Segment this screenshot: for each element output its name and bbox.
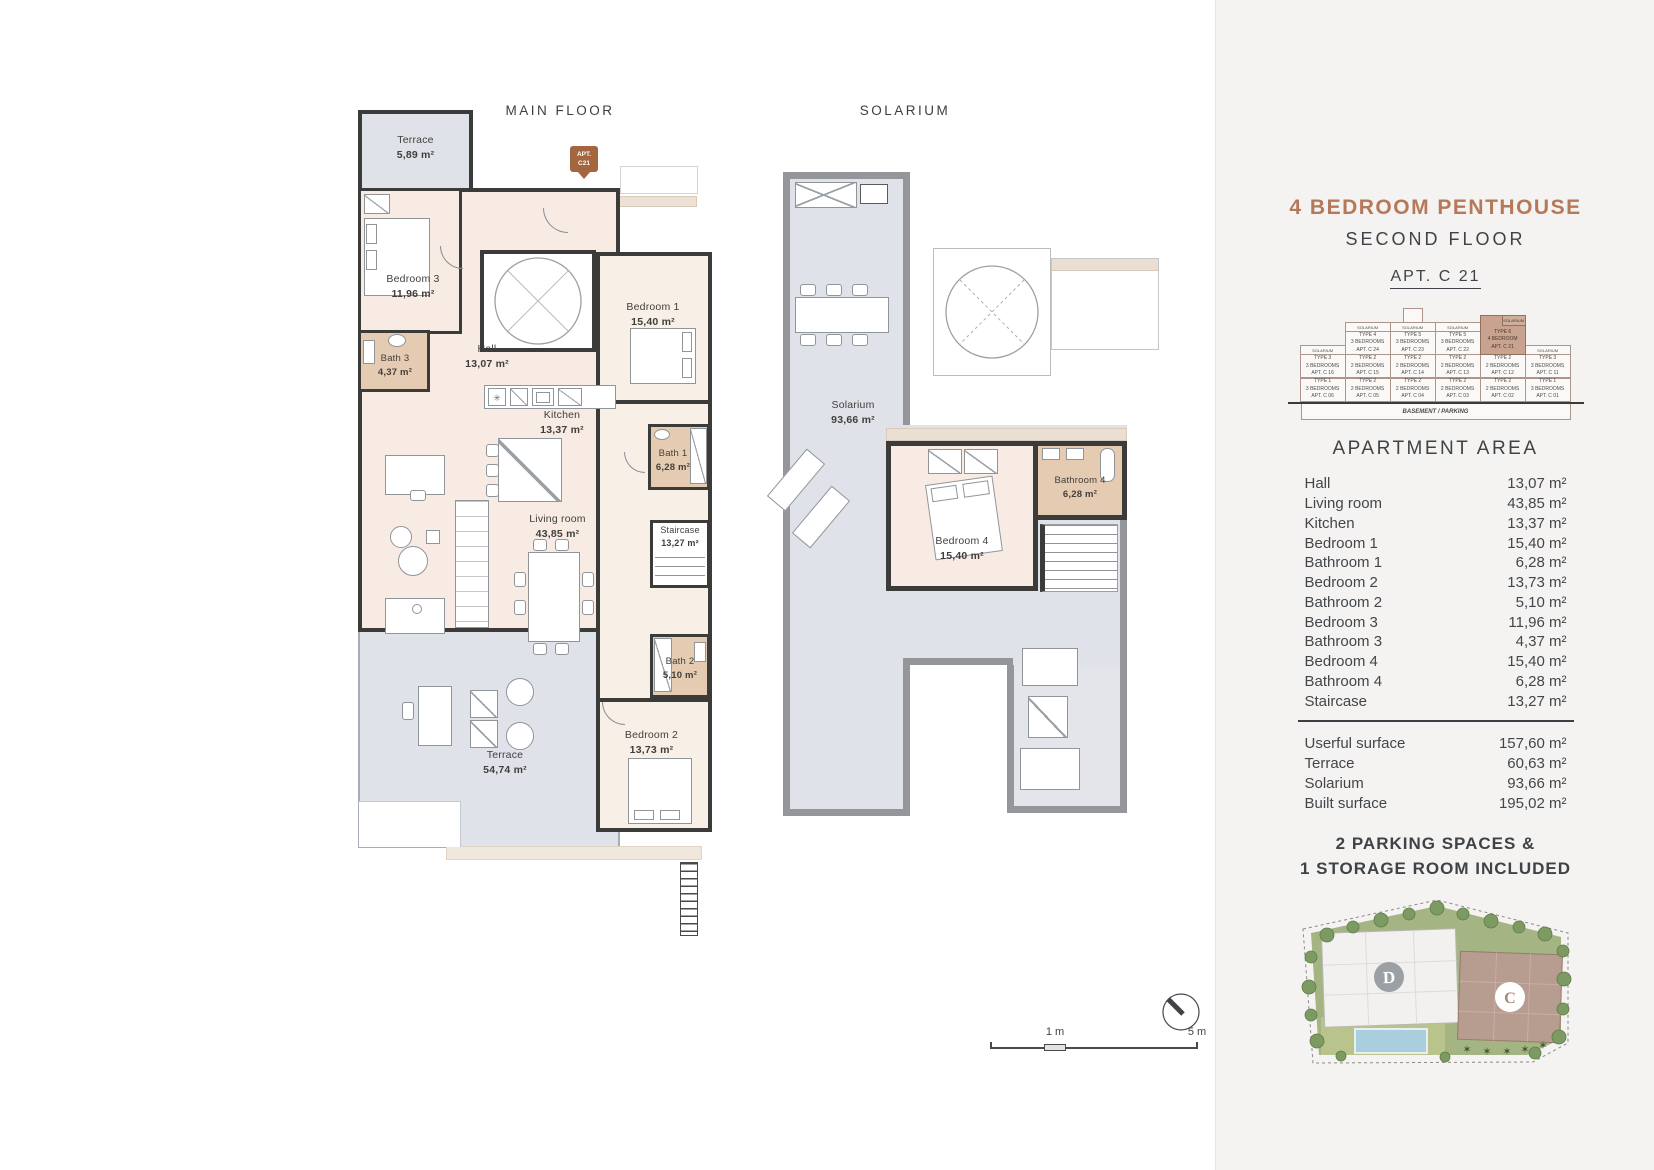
solarium-chair	[800, 284, 816, 296]
apartment-cell: TYPE 22 BEDROOMSAPT. C 15	[1345, 354, 1391, 378]
solarium-wall	[903, 662, 910, 816]
table-row: Bathroom 34,37 m²	[1305, 632, 1567, 652]
solarium-chair	[852, 284, 868, 296]
table-row: Bedroom 311,96 m²	[1305, 613, 1567, 633]
dining-table	[528, 552, 580, 642]
kitchen-island	[498, 438, 562, 502]
scale-label-5m: 5 m	[1182, 1026, 1212, 1038]
living-desk-chair	[410, 490, 426, 501]
table-row: Bathroom 46,28 m²	[1305, 672, 1567, 692]
solarium-staircase	[1040, 524, 1118, 592]
building-column-4: SOLARIUM TYPE 53 BEDROOMSAPT. C 22 TYPE …	[1436, 322, 1481, 402]
living-side-table	[398, 546, 428, 576]
lower-room-desk-2	[1020, 748, 1080, 790]
solarium-table	[795, 297, 889, 333]
roof-tower	[1403, 308, 1423, 322]
roof-outline-box	[620, 166, 698, 194]
living-desk	[385, 455, 445, 495]
bedroom3-label: Bedroom 3 11,96 m²	[368, 272, 458, 302]
totals-divider	[1298, 720, 1574, 723]
main-floor-title: MAIN FLOOR	[450, 103, 670, 118]
apartment-number: APT. C 21	[1216, 268, 1654, 286]
building-d: D	[1321, 929, 1458, 1028]
bath3-label: Bath 3 4,37 m²	[360, 352, 430, 380]
apartment-cell: TYPE 22 BEDROOMSAPT. C 05	[1345, 378, 1391, 402]
building-column-1: SOLARIUM TYPE 33 BEDROOMSAPT. C 16 TYPE …	[1301, 345, 1346, 401]
bathroom4-sink	[1042, 448, 1060, 460]
solarium-chair	[826, 284, 842, 296]
staircase-treads	[655, 557, 705, 583]
terrace-cutout	[359, 801, 461, 847]
lower-room-desk	[1022, 648, 1078, 686]
elevator-core	[480, 250, 596, 352]
scale-bar-tick	[990, 1042, 992, 1049]
site-map: D C ✶✶✶ ✶✶	[1297, 893, 1574, 1069]
apartment-area-heading: APARTMENT AREA	[1216, 438, 1654, 460]
bedroom4-label: Bedroom 4 15,40 m²	[912, 534, 1012, 564]
lower-room-box	[1028, 696, 1068, 738]
terrace-main-label: Terrace 54,74 m²	[455, 748, 555, 778]
bathroom4-sink	[1066, 448, 1084, 460]
apartment-cell: TYPE 33 BEDROOMSAPT. C 11	[1525, 354, 1571, 378]
basement-bar: BASEMENT / PARKING	[1301, 404, 1571, 420]
solarium-wall	[783, 172, 909, 179]
bedroom1-pillow	[682, 358, 692, 378]
terrace-round-chair	[506, 722, 534, 750]
apartment-cell: TYPE 22 BEDROOMSAPT. C 03	[1435, 378, 1481, 402]
kitchen-stove	[558, 388, 582, 406]
svg-text:✶: ✶	[1462, 1044, 1471, 1056]
bathroom4-label: Bathroom 4 6,28 m²	[1035, 474, 1125, 502]
bath1-label: Bath 1 6,28 m²	[644, 447, 702, 475]
roof-beige-band	[1052, 259, 1158, 271]
bedroom2-pillow	[634, 810, 654, 820]
totals-row: Terrace60,63 m²	[1305, 754, 1567, 774]
table-row: Bathroom 16,28 m²	[1305, 553, 1567, 573]
dining-chair	[514, 600, 526, 615]
ladder-strip	[680, 862, 698, 936]
bedroom3-closet	[364, 194, 390, 214]
apartment-cell: TYPE 53 BEDROOMSAPT. C 22	[1435, 331, 1481, 355]
solarium-wall	[783, 809, 910, 816]
totals-table: Userful surface157,60 m² Terrace60,63 m²…	[1305, 734, 1567, 814]
living-sofa	[455, 500, 489, 628]
bedroom2-pillow	[660, 810, 680, 820]
table-row: Hall13,07 m²	[1305, 474, 1567, 494]
apartment-cell: TYPE 33 BEDROOMSAPT. C 16	[1300, 354, 1346, 378]
bedroom3-pillow	[366, 224, 377, 244]
solarium-wall	[903, 172, 910, 425]
building-column-2: SOLARIUM TYPE 43 BEDROOMSAPT. C 24 TYPE …	[1346, 322, 1391, 402]
solarium-chair	[826, 334, 842, 346]
living-room-label: Living room 43,85 m²	[505, 512, 610, 542]
dining-chair	[582, 600, 594, 615]
scale-bar-tick	[1196, 1042, 1198, 1049]
info-sidebar: 4 BEDROOM PENTHOUSE SECOND FLOOR APT. C …	[1215, 0, 1654, 1170]
dining-chair	[555, 643, 569, 655]
building-column-6: SOLARIUM TYPE 33 BEDROOMSAPT. C 11 TYPE …	[1526, 345, 1571, 401]
site-pool	[1355, 1029, 1427, 1053]
apartment-cell: TYPE 22 BEDROOMSAPT. C 12	[1480, 354, 1526, 378]
table-row: Living room43,85 m²	[1305, 494, 1567, 514]
scale-label-1m: 1 m	[1040, 1026, 1070, 1038]
bedroom3-pillow	[366, 250, 377, 270]
lower-edge-strip	[446, 846, 702, 860]
area-table: Hall13,07 m² Living room43,85 m² Kitchen…	[1305, 474, 1567, 712]
bath3-toilet	[388, 334, 406, 347]
totals-row: Solarium93,66 m²	[1305, 774, 1567, 794]
svg-text:✶: ✶	[1482, 1046, 1491, 1058]
living-lamp	[412, 604, 422, 614]
highlighted-apartment-cell: SOLARIUM TYPE 64 BEDROOMAPT. C 21	[1480, 315, 1526, 355]
terrace-desk	[418, 686, 452, 746]
apartment-cell: TYPE 53 BEDROOMSAPT. C 23	[1390, 331, 1436, 355]
solarium-chair	[800, 334, 816, 346]
spiral-stair-icon	[934, 249, 1050, 375]
kitchen-cabinet	[510, 388, 528, 406]
solarium-chair	[852, 334, 868, 346]
bedroom4-pillow	[931, 485, 959, 502]
living-square-table	[426, 530, 440, 544]
terrace-box	[470, 690, 498, 718]
terrace-chair	[402, 702, 414, 720]
terrace-box	[470, 720, 498, 748]
bath2-label: Bath 2 5,10 m²	[650, 655, 710, 683]
bedroom1-pillow	[682, 332, 692, 352]
dining-chair	[582, 572, 594, 587]
bath1-toilet	[654, 429, 670, 440]
elevator-circle-icon	[484, 254, 592, 348]
bedroom4-beige-band	[886, 428, 1127, 441]
staircase-label: Staircase 13,27 m²	[644, 524, 716, 550]
building-c-letter: C	[1504, 990, 1516, 1007]
apt-marker: APT. C21	[570, 146, 598, 172]
solarium-ac-unit	[860, 184, 888, 204]
svg-text:✶: ✶	[1502, 1046, 1511, 1058]
apt-marker-line2: C21	[570, 160, 598, 169]
bedroom1-label: Bedroom 1 15,40 m²	[608, 300, 698, 330]
apartment-type-title: 4 BEDROOM PENTHOUSE	[1216, 196, 1654, 220]
table-row: Bedroom 415,40 m²	[1305, 652, 1567, 672]
bedroom4-wardrobe	[964, 449, 998, 474]
solarium-wall	[903, 658, 1013, 665]
spiral-stair-block	[933, 248, 1051, 376]
bedroom2-label: Bedroom 2 13,73 m²	[604, 728, 699, 758]
solarium-closet-hatch	[795, 182, 857, 208]
building-column-3: SOLARIUM TYPE 53 BEDROOMSAPT. C 23 TYPE …	[1391, 308, 1436, 402]
table-row: Bedroom 213,73 m²	[1305, 573, 1567, 593]
kitchen-stool	[486, 464, 499, 477]
dining-chair	[533, 643, 547, 655]
living-side-table-small	[390, 526, 412, 548]
kitchen-stool	[486, 444, 499, 457]
solarium-wall	[1007, 665, 1014, 813]
totals-row: Built surface195,02 m²	[1305, 794, 1567, 814]
table-row: Kitchen13,37 m²	[1305, 514, 1567, 534]
bedroom4-pillow	[962, 480, 990, 497]
kitchen-label: Kitchen 13,37 m²	[522, 408, 602, 438]
apartment-cell: TYPE 13 BEDROOMSAPT. C 01	[1525, 378, 1571, 402]
table-row: Staircase13,27 m²	[1305, 692, 1567, 712]
table-row: Bathroom 25,10 m²	[1305, 593, 1567, 613]
floor-subtitle: SECOND FLOOR	[1216, 229, 1654, 250]
apartment-cell: TYPE 13 BEDROOMSAPT. C 06	[1300, 378, 1346, 402]
apt-marker-line1: APT.	[570, 151, 598, 160]
roof-room-outline	[1051, 258, 1159, 350]
kitchen-freezer: ✳	[488, 388, 506, 406]
solarium-strip: SOLARIUM	[1502, 316, 1525, 326]
svg-text:✶: ✶	[1520, 1044, 1529, 1056]
solarium-title: SOLARIUM	[795, 103, 1015, 118]
hall-label: Hall 13,07 m²	[447, 342, 527, 372]
floorplan-brochure-page: { "page": { "main_title": "MAIN FLOOR", …	[0, 0, 1654, 1170]
parking-note: 2 PARKING SPACES & 1 STORAGE ROOM INCLUD…	[1216, 832, 1654, 881]
scale-bar-unit-box	[1044, 1044, 1066, 1051]
bedroom4-wardrobe	[928, 449, 962, 474]
kitchen-stool	[486, 484, 499, 497]
dining-chair	[514, 572, 526, 587]
terrace-top-label: Terrace 5,89 m²	[368, 133, 463, 163]
scale-bar-line	[990, 1047, 1197, 1049]
apartment-cell: TYPE 22 BEDROOMSAPT. C 04	[1390, 378, 1436, 402]
solarium-label: Solarium 93,66 m²	[803, 398, 903, 428]
building-column-5-highlighted: SOLARIUM TYPE 64 BEDROOMAPT. C 21 TYPE 2…	[1481, 315, 1526, 401]
apartment-cell: TYPE 22 BEDROOMSAPT. C 14	[1390, 354, 1436, 378]
building-d-letter: D	[1383, 968, 1396, 987]
terrace-round-chair	[506, 678, 534, 706]
table-row: Bedroom 115,40 m²	[1305, 534, 1567, 554]
kitchen-sink	[532, 388, 554, 406]
apartment-cell: TYPE 43 BEDROOMSAPT. C 24	[1345, 331, 1391, 355]
apartment-cell: TYPE 22 BEDROOMSAPT. C 02	[1480, 378, 1526, 402]
svg-text:✶: ✶	[1538, 1040, 1547, 1052]
building-c: C	[1457, 952, 1562, 1044]
building-stack-diagram: SOLARIUM TYPE 33 BEDROOMSAPT. C 16 TYPE …	[1301, 308, 1571, 420]
totals-row: Userful surface157,60 m²	[1305, 734, 1567, 754]
solarium-wall	[1007, 806, 1127, 813]
apartment-cell: TYPE 22 BEDROOMSAPT. C 13	[1435, 354, 1481, 378]
